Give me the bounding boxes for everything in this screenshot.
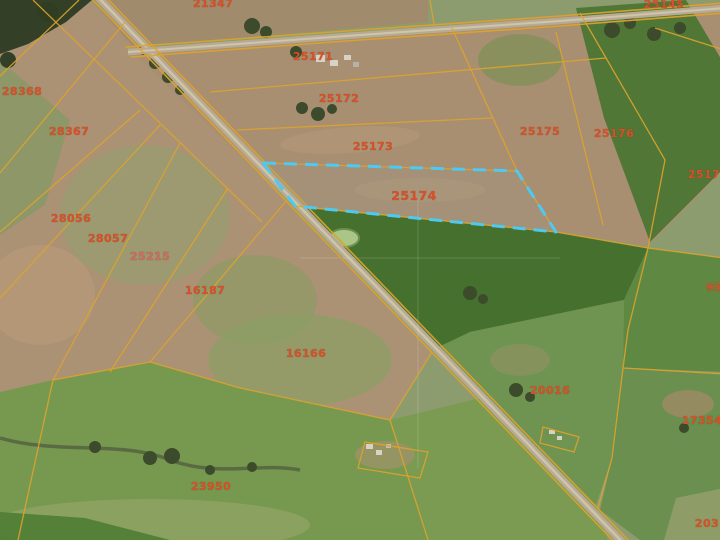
parcel-label-23950[interactable]: 23950	[191, 480, 231, 493]
field-patch	[490, 344, 550, 376]
forest-patch	[0, 52, 16, 68]
building	[366, 444, 373, 449]
parcel-label-28056[interactable]: 28056	[51, 212, 91, 225]
parcel-label-28367[interactable]: 28367	[49, 125, 89, 138]
parcel-label-16166[interactable]: 16166	[286, 347, 326, 360]
parcel-label-25175[interactable]: 25175	[520, 125, 560, 138]
map-canvas: 21347 25145 25171 25172 25173 25174 2517…	[0, 0, 720, 540]
tree-icon	[205, 465, 215, 475]
field-patch	[478, 34, 562, 86]
tree-icon	[164, 448, 180, 464]
tree-icon	[463, 286, 477, 300]
tree-icon	[327, 104, 337, 114]
parcel-label-16187[interactable]: 16187	[185, 284, 225, 297]
parcel-label-95[interactable]: 95	[706, 281, 720, 294]
parcel-label-25215[interactable]: 25215	[130, 250, 170, 263]
parcel-label-25173[interactable]: 25173	[353, 140, 393, 153]
forest-patch	[38, 2, 58, 22]
map-viewport[interactable]: 21347 25145 25171 25172 25173 25174 2517…	[0, 0, 720, 540]
parcel-label-28057[interactable]: 28057	[88, 232, 128, 245]
tree-icon	[509, 383, 523, 397]
tree-icon	[478, 294, 488, 304]
forest-patch	[8, 3, 32, 27]
tree-icon	[143, 451, 157, 465]
parcel-label-17354[interactable]: 17354	[682, 414, 720, 427]
parcel-label-25171[interactable]: 25171	[293, 50, 333, 63]
parcel-label-25145[interactable]: 25145	[644, 0, 684, 11]
parcel-label-25177[interactable]: 25177	[688, 168, 720, 181]
parcel-label-21347[interactable]: 21347	[193, 0, 233, 10]
tree-icon	[674, 22, 686, 34]
tree-icon	[89, 441, 101, 453]
parcel-label-2031[interactable]: 2031	[695, 517, 720, 530]
building	[353, 62, 359, 67]
parcel-label-25176[interactable]: 25176	[594, 127, 634, 140]
building	[344, 55, 351, 60]
tree-icon	[296, 102, 308, 114]
tree-icon	[604, 22, 620, 38]
parcel-label-28368[interactable]: 28368	[2, 85, 42, 98]
parcel-label-20016[interactable]: 20016	[530, 384, 570, 397]
parcel-label-25172[interactable]: 25172	[319, 92, 359, 105]
tree-icon	[244, 18, 260, 34]
parcel-label-25174-selected[interactable]: 25174	[391, 188, 437, 203]
building	[376, 450, 382, 455]
tree-icon	[311, 107, 325, 121]
tree-icon	[247, 462, 257, 472]
building	[557, 436, 562, 440]
